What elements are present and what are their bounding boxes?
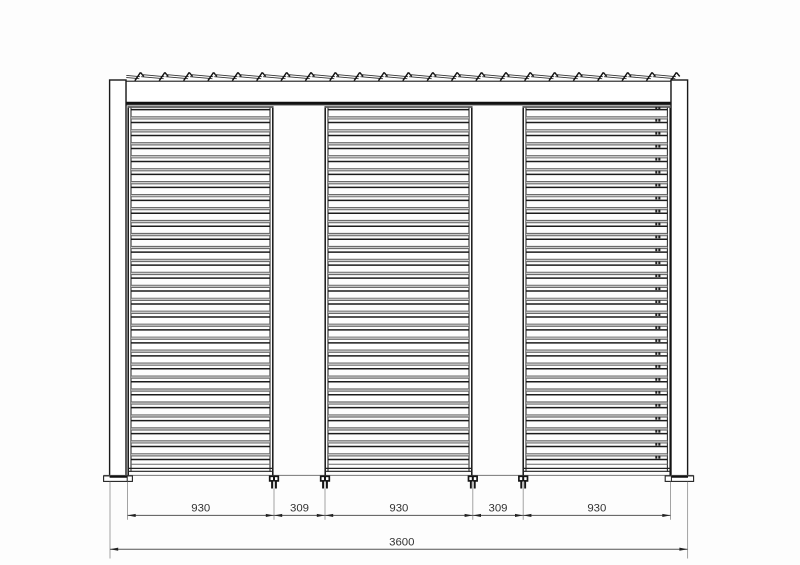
svg-text:930: 930 [587, 503, 606, 515]
svg-text:930: 930 [191, 503, 210, 515]
svg-text:309: 309 [488, 503, 507, 515]
svg-text:930: 930 [389, 503, 408, 515]
svg-text:3600: 3600 [389, 536, 414, 548]
svg-text:309: 309 [290, 503, 309, 515]
